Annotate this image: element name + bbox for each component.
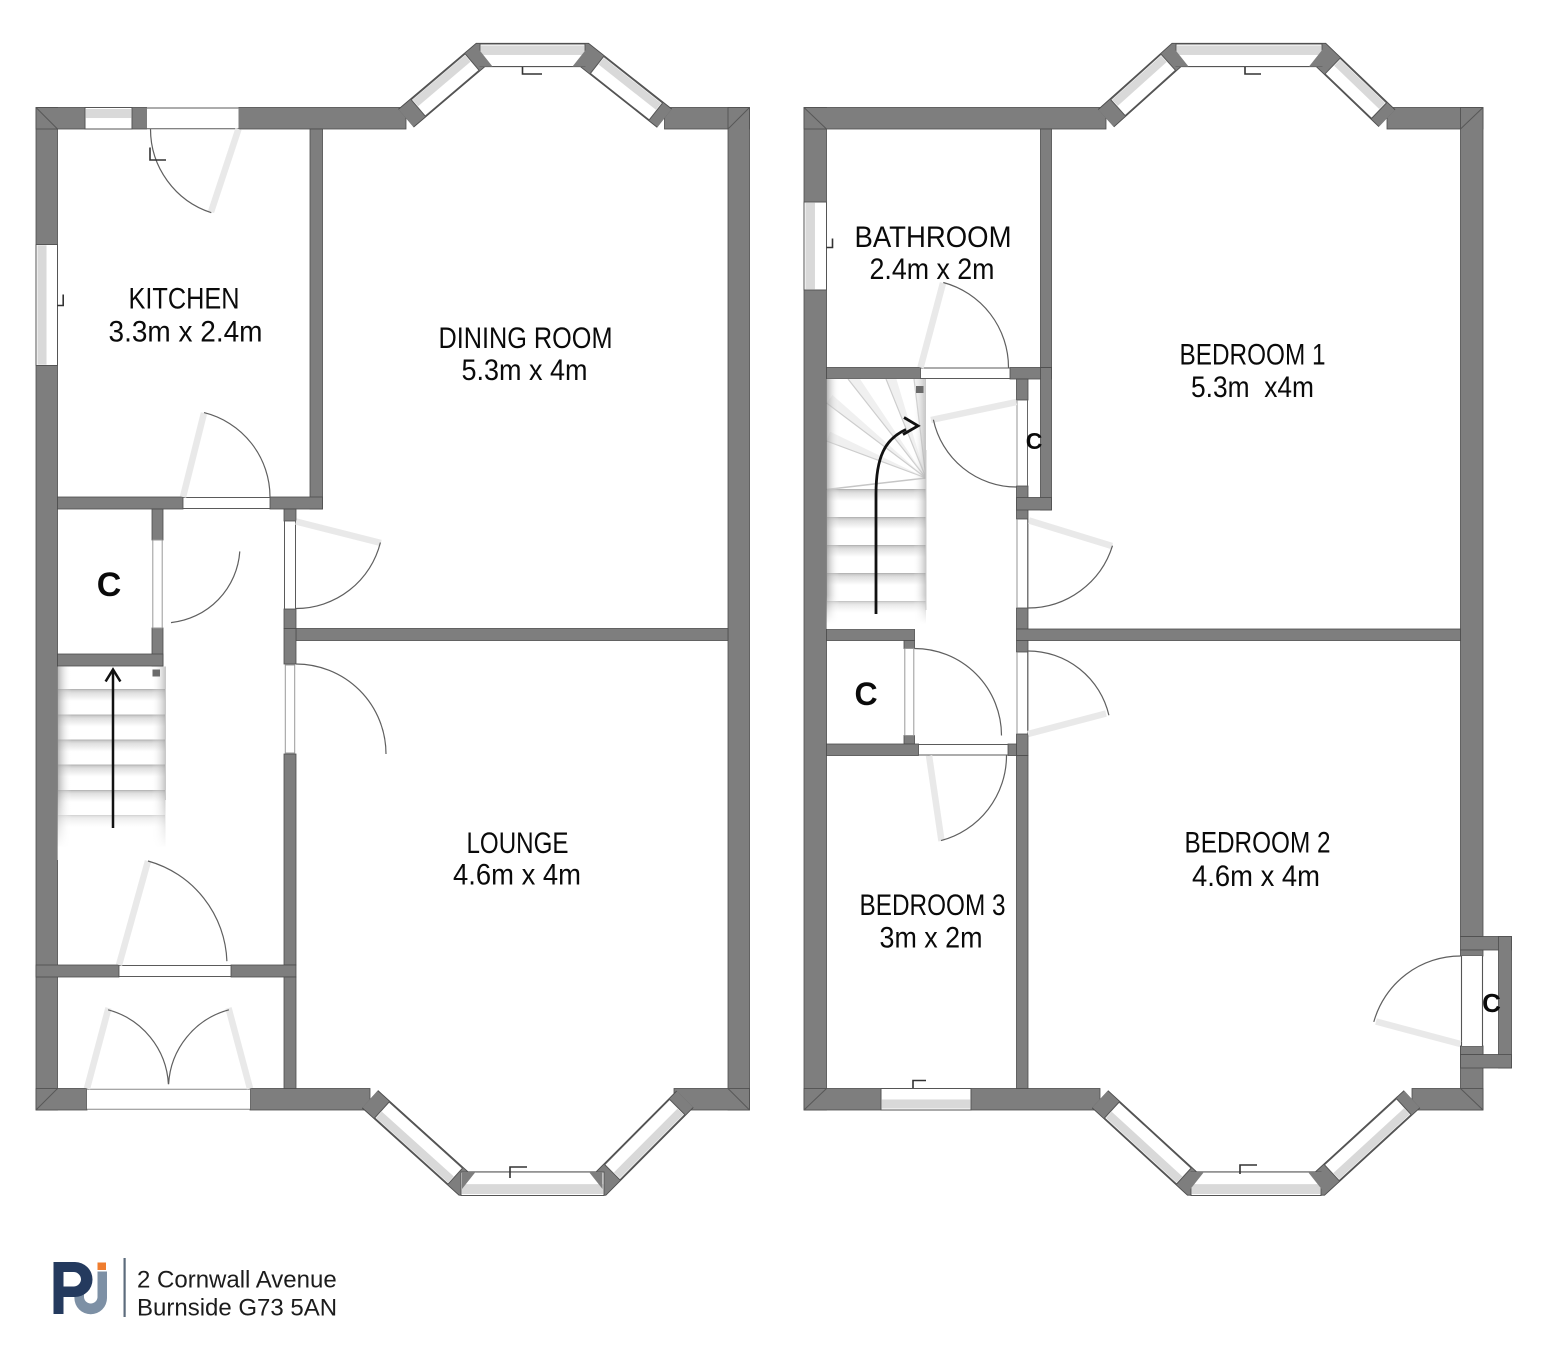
svg-text:KITCHEN: KITCHEN — [129, 283, 240, 316]
svg-text:3m x 2m: 3m x 2m — [880, 922, 983, 955]
svg-text:BEDROOM 1: BEDROOM 1 — [1180, 339, 1326, 372]
svg-text:BEDROOM 3: BEDROOM 3 — [860, 889, 1006, 922]
svg-text:DINING ROOM: DINING ROOM — [439, 322, 613, 355]
svg-text:5.3m x 4m: 5.3m x 4m — [462, 354, 588, 387]
svg-text:C: C — [854, 676, 877, 712]
svg-text:3.3m x 2.4m: 3.3m x 2.4m — [109, 316, 263, 349]
svg-text:C: C — [97, 566, 122, 604]
svg-text:2 Cornwall Avenue: 2 Cornwall Avenue — [137, 1267, 337, 1294]
svg-text:BEDROOM 2: BEDROOM 2 — [1185, 827, 1331, 860]
svg-text:C: C — [1026, 428, 1043, 454]
svg-text:Burnside G73 5AN: Burnside G73 5AN — [137, 1295, 337, 1322]
svg-text:C: C — [1482, 988, 1501, 1018]
svg-text:5.3m x4m: 5.3m x4m — [1191, 371, 1314, 404]
svg-text:2.4m x 2m: 2.4m x 2m — [870, 253, 995, 286]
svg-text:4.6m x 4m: 4.6m x 4m — [453, 859, 581, 892]
svg-text:LOUNGE: LOUNGE — [467, 827, 569, 860]
svg-text:4.6m x 4m: 4.6m x 4m — [1192, 860, 1320, 893]
svg-text:BATHROOM: BATHROOM — [855, 221, 1012, 254]
